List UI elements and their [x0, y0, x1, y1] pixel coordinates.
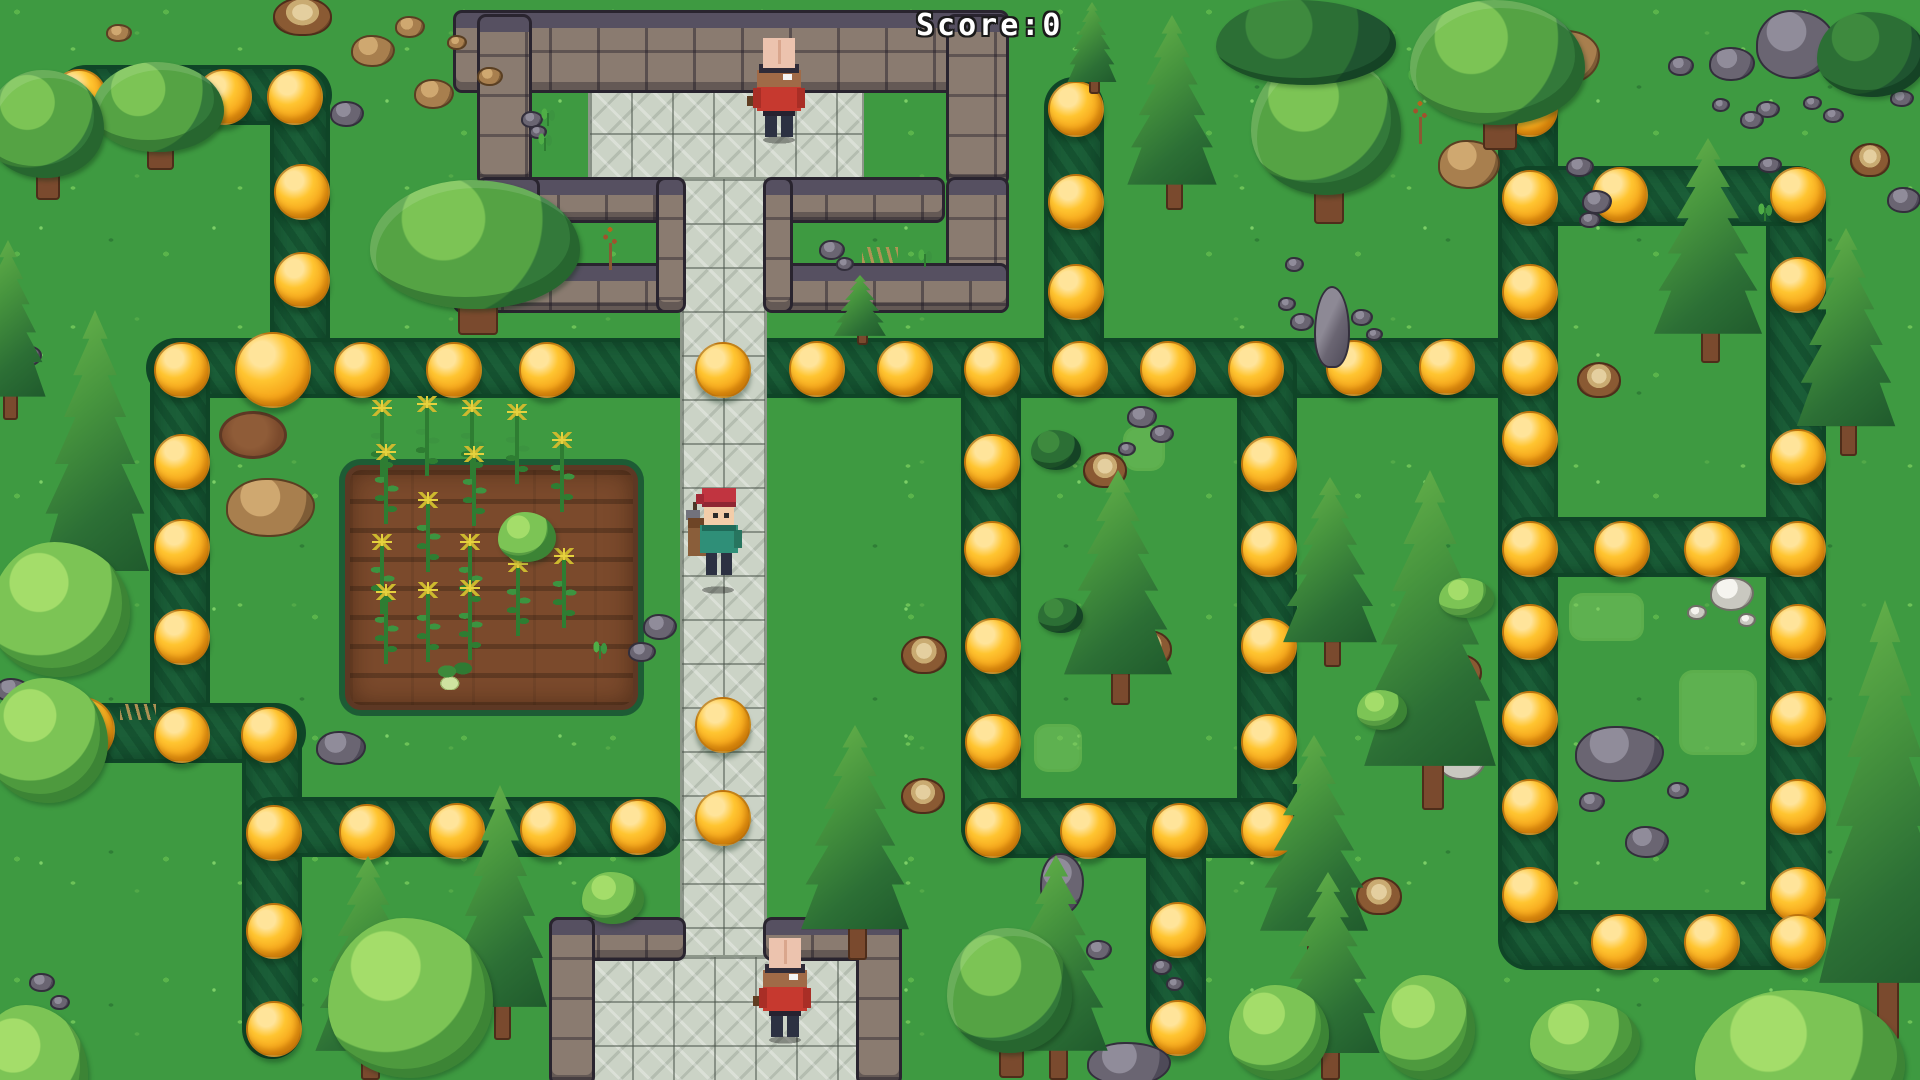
pellet — [1770, 167, 1826, 223]
pellet — [1419, 339, 1475, 395]
pellet — [1684, 521, 1740, 577]
pellet — [1502, 691, 1558, 747]
boulder-tan — [477, 67, 503, 86]
corn-plant — [461, 446, 487, 526]
rock — [1667, 782, 1689, 799]
pellet — [519, 342, 575, 398]
corn-plant — [551, 548, 577, 628]
rock — [1740, 111, 1764, 129]
enemy-top — [747, 36, 811, 148]
pellet — [235, 332, 311, 408]
rock — [29, 973, 55, 992]
boulder-tan — [447, 35, 467, 50]
rock — [1712, 98, 1730, 112]
dark-bush — [1031, 430, 1081, 470]
pellet — [274, 164, 330, 220]
squash-plant — [433, 660, 477, 690]
bush — [1439, 578, 1494, 618]
pellet — [965, 802, 1021, 858]
dry-grass — [862, 247, 898, 263]
pellet — [267, 69, 323, 125]
boulder-tan — [414, 79, 454, 109]
corn-plant — [504, 404, 530, 484]
pellet — [965, 714, 1021, 770]
pellet — [1228, 341, 1284, 397]
pellet — [246, 903, 302, 959]
rock — [1709, 47, 1755, 81]
corn-plant — [415, 492, 441, 572]
corn-plant — [414, 396, 440, 476]
tree-stump — [1577, 362, 1621, 398]
rock-white — [1687, 605, 1707, 620]
pellet — [154, 609, 210, 665]
pine-tree — [1651, 138, 1766, 363]
stone-wall — [477, 14, 532, 186]
stone-wall — [777, 177, 945, 223]
pellet — [274, 252, 330, 308]
light-grass-patch — [1679, 670, 1757, 755]
farm-bush — [498, 512, 556, 562]
corn-plant — [373, 444, 399, 524]
pellet — [695, 342, 751, 398]
rock — [1625, 826, 1669, 858]
rock — [330, 101, 364, 127]
bush — [1357, 690, 1407, 730]
corn-plant — [505, 556, 531, 636]
light-grass-patch — [1569, 593, 1644, 641]
light-grass-patch — [1034, 724, 1082, 772]
stone-wall — [763, 177, 793, 313]
rock — [1575, 726, 1664, 782]
pellet — [1591, 914, 1647, 970]
rock — [1285, 257, 1304, 272]
pellet — [1150, 902, 1206, 958]
pellet — [964, 341, 1020, 397]
oak-tree — [92, 62, 224, 170]
rock — [1579, 792, 1605, 812]
pellet — [1684, 914, 1740, 970]
bush — [582, 872, 644, 924]
pellet — [1052, 341, 1108, 397]
rock — [316, 731, 366, 765]
pine-tree — [1066, 2, 1118, 94]
pine-tree — [1815, 600, 1920, 1040]
pellet — [610, 799, 666, 855]
tree-stump — [901, 636, 947, 674]
score-value: 0 — [1042, 8, 1063, 43]
pine-tree — [1360, 470, 1500, 810]
grass-sprout — [536, 129, 554, 151]
pellet — [1594, 521, 1650, 577]
stone-wall — [777, 263, 1009, 313]
boulder-tan — [395, 16, 425, 38]
pellet — [241, 707, 297, 763]
standing-stone — [1314, 286, 1350, 368]
rock — [50, 995, 70, 1010]
rock — [643, 614, 677, 640]
dead-sapling — [599, 226, 621, 270]
pellet — [964, 434, 1020, 490]
player[interactable] — [686, 486, 750, 598]
rock — [1290, 313, 1314, 331]
bush — [1229, 985, 1329, 1080]
pellet — [246, 1001, 302, 1057]
bush — [1380, 975, 1475, 1080]
pellet — [1140, 341, 1196, 397]
pellet — [964, 521, 1020, 577]
corn-plant — [457, 580, 483, 660]
corn-plant — [373, 584, 399, 664]
pine-tree — [833, 275, 888, 345]
corn-plant — [415, 582, 441, 662]
pine-tree — [0, 240, 48, 420]
pellet — [246, 805, 302, 861]
pellet — [1048, 264, 1104, 320]
boulder-tan — [351, 35, 395, 67]
pine-tree — [1061, 470, 1176, 705]
pellet — [154, 342, 210, 398]
pellet — [1502, 264, 1558, 320]
pellet — [965, 618, 1021, 674]
rock — [1887, 187, 1920, 213]
rock — [1803, 96, 1822, 110]
dry-grass — [120, 704, 156, 720]
pellet — [695, 790, 751, 846]
stone-wall — [549, 917, 595, 1080]
oak-tree — [1410, 0, 1585, 150]
pellet — [1502, 604, 1558, 660]
bush — [0, 678, 108, 803]
pellet — [154, 434, 210, 490]
game-viewport[interactable]: Score:0 — [0, 0, 1920, 1080]
pellet — [154, 707, 210, 763]
dark-bush — [1216, 0, 1396, 85]
rock — [1366, 328, 1383, 341]
maze-path — [965, 342, 1017, 854]
pellet — [695, 697, 751, 753]
oak-tree — [0, 70, 104, 200]
grass-sprout — [591, 637, 609, 659]
pine-tree — [1125, 15, 1220, 210]
pellet — [339, 804, 395, 860]
grass-sprout — [916, 245, 934, 267]
stone-tile-floor — [588, 87, 864, 181]
pellet — [1502, 779, 1558, 835]
oak-tree — [947, 928, 1072, 1078]
stone-wall — [656, 177, 686, 313]
corn-plant — [549, 432, 575, 512]
score-label: Score: — [916, 8, 1042, 43]
rock — [628, 642, 656, 662]
rock — [1351, 309, 1373, 326]
pellet — [1502, 867, 1558, 923]
pellet — [1502, 521, 1558, 577]
pellet — [789, 341, 845, 397]
rock — [1150, 425, 1174, 443]
oak-tree — [370, 180, 580, 335]
bush — [1530, 1000, 1640, 1080]
pellet — [1060, 803, 1116, 859]
pellet — [426, 342, 482, 398]
rock — [1823, 108, 1844, 123]
boulder-tan — [226, 478, 315, 537]
pellet — [1770, 521, 1826, 577]
score-display: Score:0 — [916, 8, 1063, 43]
dark-bush — [1038, 598, 1083, 633]
pellet — [1048, 174, 1104, 230]
grass-sprout — [539, 104, 557, 126]
rock — [1668, 56, 1694, 76]
tree-stump — [273, 0, 332, 36]
rock-white — [1738, 613, 1756, 627]
rock-white — [1710, 577, 1754, 611]
pellet — [1502, 411, 1558, 467]
pellet — [334, 342, 390, 398]
bush — [0, 1005, 88, 1080]
rock — [1278, 297, 1296, 311]
tree-stump — [1850, 143, 1890, 177]
pellet — [1152, 803, 1208, 859]
pine-tree — [1794, 228, 1899, 456]
dark-bush — [1817, 12, 1920, 97]
pellet — [1502, 170, 1558, 226]
pellet — [877, 341, 933, 397]
dirt-patch — [219, 411, 287, 459]
boulder-tan — [106, 24, 132, 42]
pine-tree — [798, 725, 913, 960]
pellet — [1502, 340, 1558, 396]
rock — [1127, 406, 1157, 428]
stone-tile-floor — [589, 955, 860, 1080]
rock — [1579, 212, 1601, 228]
pellet — [154, 519, 210, 575]
